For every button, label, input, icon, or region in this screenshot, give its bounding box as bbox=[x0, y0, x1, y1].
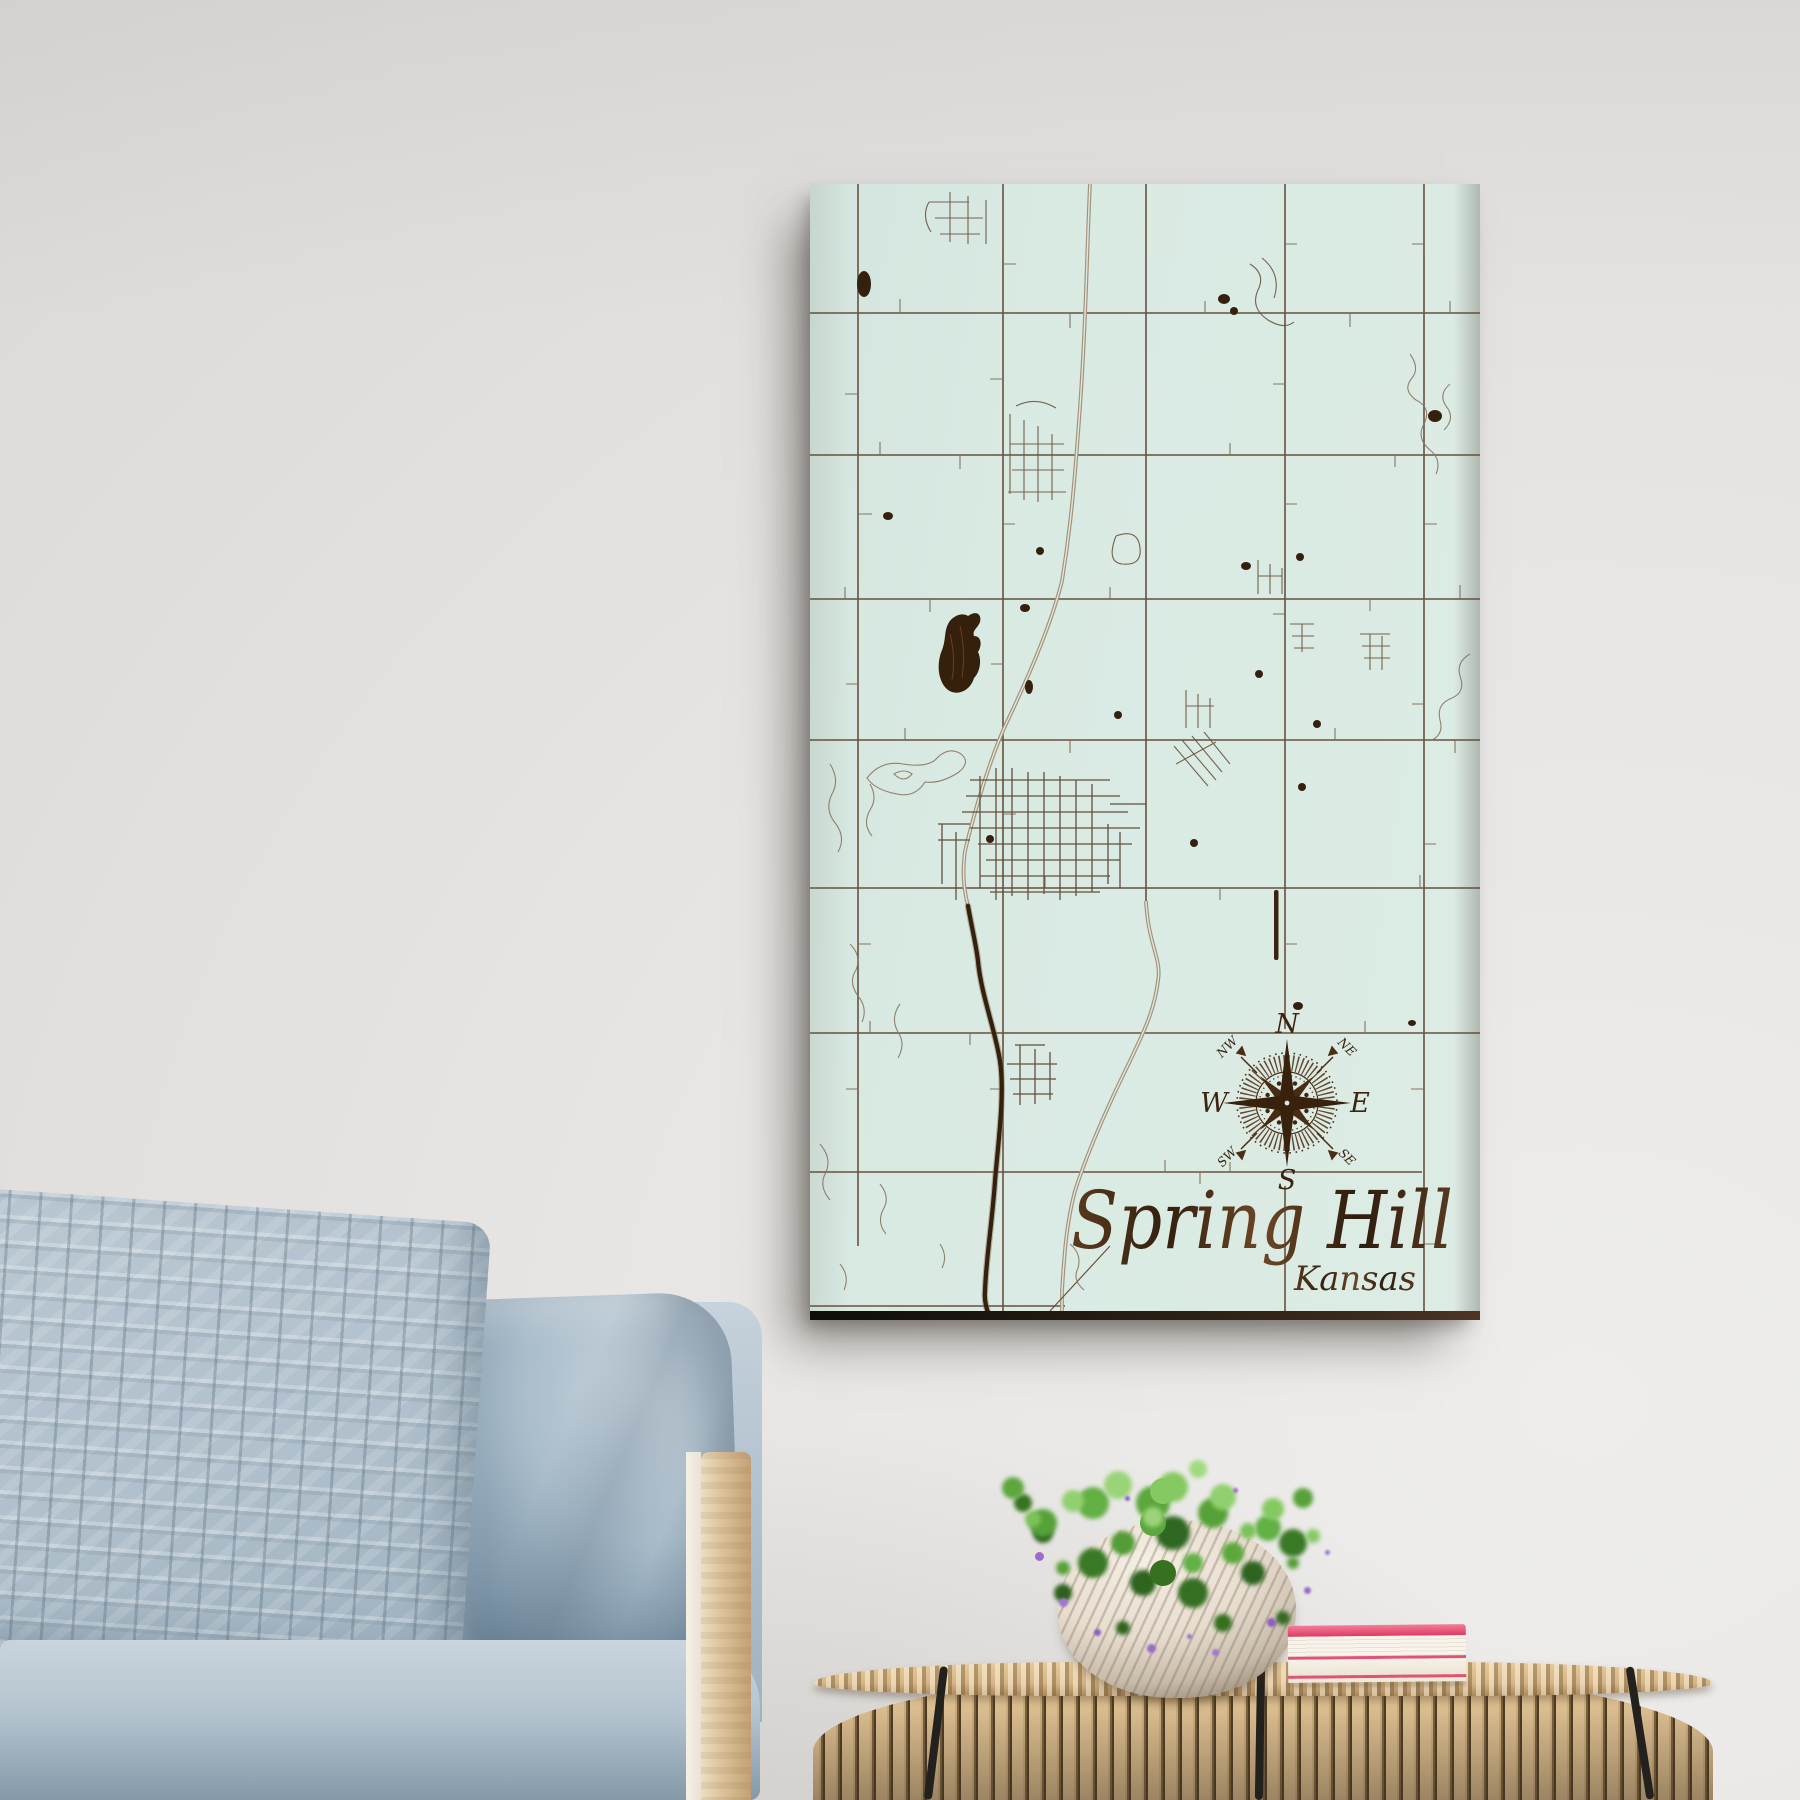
sofa-frame-trim bbox=[686, 1452, 701, 1800]
creeks bbox=[820, 354, 1470, 1290]
bottom-book bbox=[1288, 1658, 1466, 1676]
compass-rose: N E S W NW NE SW SE bbox=[1200, 1009, 1370, 1196]
compass-label-southeast: SE bbox=[1336, 1145, 1359, 1168]
compass-label-west: W bbox=[1200, 1088, 1230, 1119]
lakes-and-ponds bbox=[857, 271, 1442, 1026]
sofa-seat-cushion bbox=[0, 1640, 760, 1800]
compass-label-north: N bbox=[1274, 1009, 1300, 1040]
top-book-pages bbox=[1288, 1635, 1466, 1657]
street-map-engraving: N E S W NW NE SW SE Spring Hill Kansas bbox=[810, 184, 1480, 1311]
highway-route bbox=[964, 184, 1159, 1311]
plant-foliage-dark bbox=[1150, 1560, 1176, 1586]
knit-pillow bbox=[0, 1186, 492, 1691]
map-plywood-edge bbox=[810, 1311, 1480, 1320]
section-road-grid bbox=[810, 184, 1480, 1311]
subdivision-roads bbox=[925, 192, 1390, 786]
dark-main-road bbox=[968, 906, 1002, 1311]
book-stack bbox=[1288, 1624, 1467, 1683]
sofa bbox=[0, 1190, 770, 1800]
living-room-scene: N E S W NW NE SW SE Spring Hill Kansas bbox=[0, 0, 1800, 1800]
plant-pot bbox=[1058, 1520, 1296, 1698]
map-wall-art: N E S W NW NE SW SE Spring Hill Kansas bbox=[810, 184, 1480, 1320]
plant-foliage-light bbox=[1150, 1478, 1176, 1504]
map-title: Spring Hill bbox=[1071, 1174, 1453, 1267]
plant-foliage-mid bbox=[1140, 1510, 1166, 1536]
compass-label-east: E bbox=[1349, 1088, 1370, 1119]
map-subtitle: Kansas bbox=[1293, 1259, 1416, 1299]
sofa-wood-leg bbox=[701, 1452, 751, 1800]
compass-label-northwest: NW bbox=[1212, 1032, 1241, 1061]
downtown-street-grid bbox=[938, 768, 1146, 1105]
compass-label-southwest: SW bbox=[1214, 1143, 1241, 1170]
compass-label-northeast: NE bbox=[1334, 1034, 1360, 1060]
plant-flowers bbox=[1035, 1552, 1044, 1561]
